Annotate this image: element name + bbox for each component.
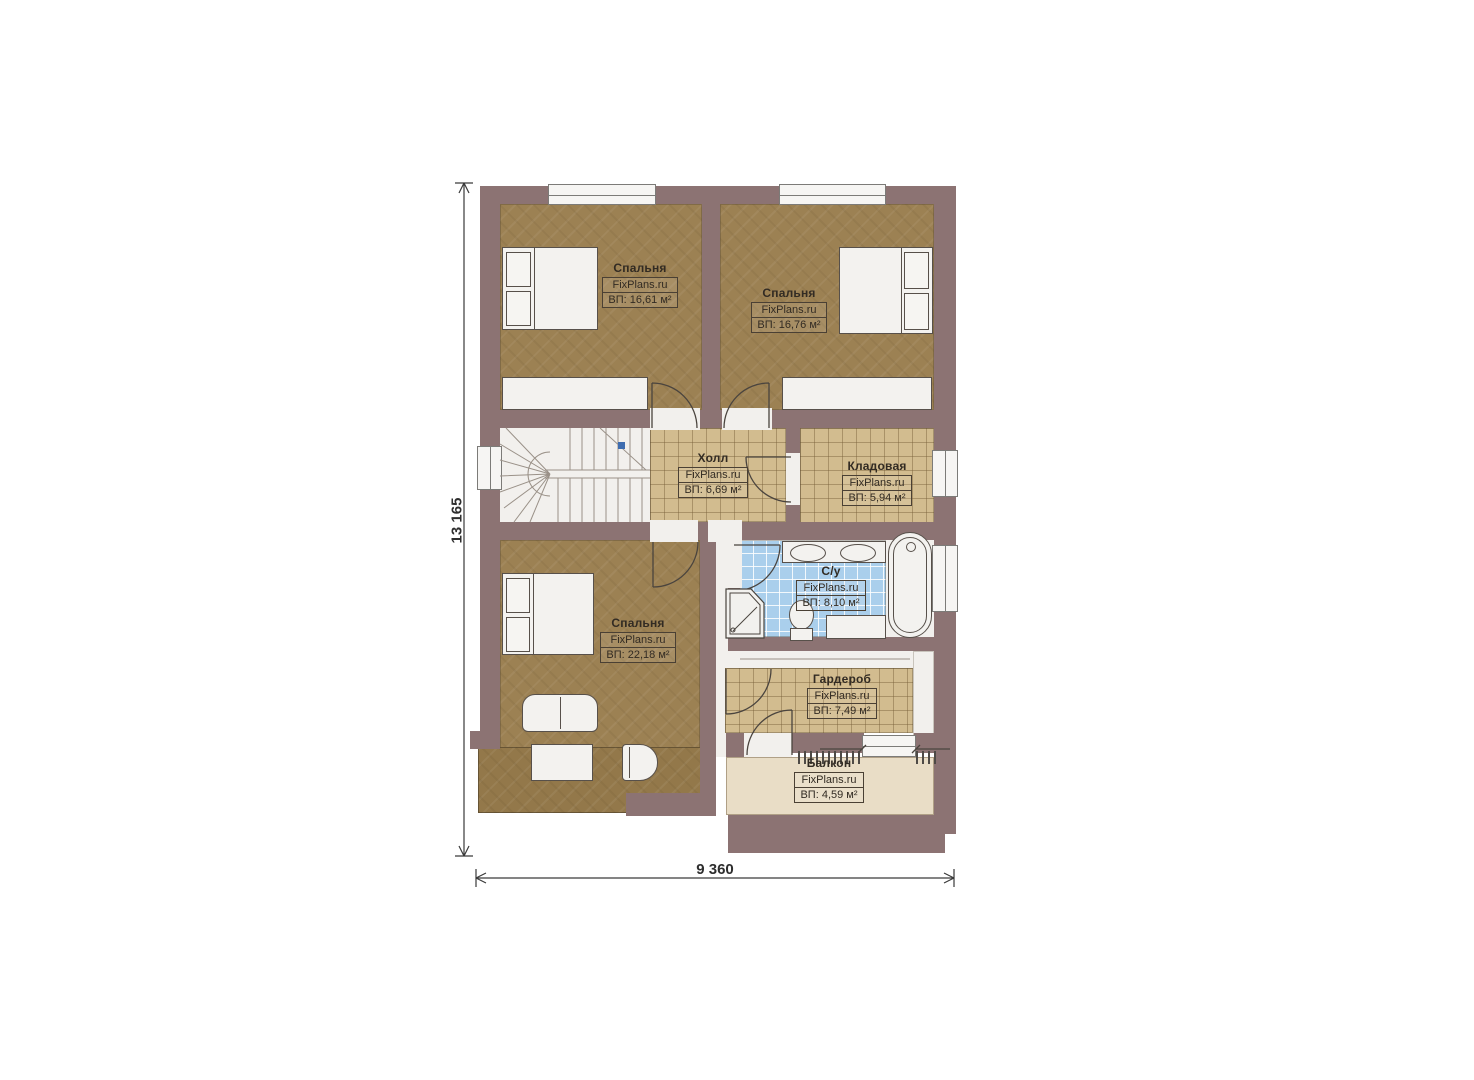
window-top-left (548, 184, 656, 205)
wardrobe-unit-bedroom-top-right (782, 377, 932, 410)
window-balcony (862, 735, 916, 757)
bed-top-right (839, 247, 933, 334)
balcony-railing-right (916, 751, 936, 764)
room-name: С/у (792, 565, 870, 578)
area-text: ВП: 22,18 м² (601, 648, 674, 662)
room-info-box: FixPlans.ru ВП: 16,76 м² (751, 302, 826, 333)
window-right-storage (932, 450, 958, 497)
wall-between-top-bedrooms (702, 204, 720, 428)
door-opening-storage (786, 453, 800, 505)
area-text: ВП: 16,76 м² (752, 318, 825, 332)
dimension-height-label: 13 165 (449, 490, 466, 552)
area-text: ВП: 7,49 м² (808, 704, 875, 718)
area-text: ВП: 6,69 м² (679, 483, 746, 497)
door-opening-bedroom-top-left (650, 408, 700, 430)
pillow (506, 291, 531, 326)
area-text: ВП: 8,10 м² (797, 596, 864, 610)
bed-headboard-line (534, 248, 535, 329)
wall-bedroom-bottom-right (700, 540, 716, 816)
sofa (522, 694, 598, 732)
room-info-box: FixPlans.ru ВП: 6,69 м² (678, 467, 747, 498)
wall-bedroom-bottom-edge (626, 793, 716, 816)
door-opening-bedroom-top-right (722, 408, 772, 430)
chair (622, 744, 658, 781)
wall-exterior-right (934, 186, 956, 834)
room-name: Кладовая (836, 460, 918, 473)
dimension-width-label: 9 360 (680, 861, 750, 878)
wall-left-stub (470, 731, 500, 749)
room-label-bedroom-top-right: Спальня FixPlans.ru ВП: 16,76 м² (746, 287, 832, 333)
room-info-box: FixPlans.ru ВП: 8,10 м² (796, 580, 865, 611)
brand-text: FixPlans.ru (795, 773, 862, 788)
sofa-cushion-line (560, 697, 561, 729)
window-top-right (779, 184, 886, 205)
toilet-tank (790, 628, 813, 641)
area-text: ВП: 5,94 м² (843, 491, 910, 505)
wall-balcony-right (914, 733, 934, 753)
brand-text: FixPlans.ru (752, 303, 825, 318)
brand-text: FixPlans.ru (603, 278, 676, 293)
room-info-box: FixPlans.ru ВП: 16,61 м² (602, 277, 677, 308)
bathtub (888, 532, 932, 638)
window-right-bathroom (932, 545, 958, 612)
room-name: Спальня (746, 287, 832, 300)
room-label-bathroom: С/у FixPlans.ru ВП: 8,10 м² (792, 565, 870, 611)
floor-plan-canvas: Спальня FixPlans.ru ВП: 16,61 м² Спальня… (0, 0, 1474, 1080)
pillow (506, 617, 530, 652)
closet-strip-top (716, 651, 913, 668)
door-opening-balcony (744, 733, 792, 757)
room-label-storage: Кладовая FixPlans.ru ВП: 5,94 м² (836, 460, 918, 506)
corridor-passage-opening (708, 520, 742, 542)
brand-text: FixPlans.ru (808, 689, 875, 704)
room-info-box: FixPlans.ru ВП: 7,49 м² (807, 688, 876, 719)
staircase-floor (500, 428, 650, 522)
chair-back-line (629, 747, 630, 778)
bed-headboard-line (901, 248, 902, 333)
room-label-wardrobe: Гардероб FixPlans.ru ВП: 7,49 м² (798, 673, 886, 719)
room-name: Холл (672, 452, 754, 465)
door-opening-bedroom-bottom (650, 520, 698, 542)
pillow (506, 578, 530, 613)
brand-text: FixPlans.ru (601, 633, 674, 648)
room-label-hall: Холл FixPlans.ru ВП: 6,69 м² (672, 452, 754, 498)
sink (840, 544, 876, 562)
room-name: Балкон (784, 757, 874, 770)
room-info-box: FixPlans.ru ВП: 5,94 м² (842, 475, 911, 506)
bathroom-cabinet (826, 615, 886, 639)
bed-bottom (502, 573, 594, 655)
bed-headboard-line (533, 574, 534, 654)
brand-text: FixPlans.ru (679, 468, 746, 483)
area-text: ВП: 16,61 м² (603, 293, 676, 307)
table (531, 744, 593, 781)
wall-bathroom-bottom (728, 637, 934, 651)
wall-balcony-stub-left (726, 733, 746, 757)
wall-below-balcony (728, 815, 945, 853)
room-info-box: FixPlans.ru ВП: 22,18 м² (600, 632, 675, 663)
brand-text: FixPlans.ru (797, 581, 864, 596)
bed-top-left (502, 247, 598, 330)
wall-under-top-bedrooms (500, 410, 934, 428)
brand-text: FixPlans.ru (843, 476, 910, 491)
area-text: ВП: 4,59 м² (795, 788, 862, 802)
room-label-balcony: Балкон FixPlans.ru ВП: 4,59 м² (784, 757, 874, 803)
room-name: Спальня (592, 262, 688, 275)
room-label-bedroom-bottom: Спальня FixPlans.ru ВП: 22,18 м² (596, 617, 680, 663)
room-name: Спальня (596, 617, 680, 630)
room-label-bedroom-top-left: Спальня FixPlans.ru ВП: 16,61 м² (592, 262, 688, 308)
closet-strip-right (913, 651, 934, 735)
wall-balcony-mid (790, 733, 864, 753)
pillow (506, 252, 531, 287)
pillow (904, 293, 929, 330)
bathtub-drain (906, 542, 916, 552)
pillow (904, 252, 929, 289)
sink (790, 544, 826, 562)
wardrobe-unit-bedroom-top-left (502, 377, 648, 410)
room-info-box: FixPlans.ru ВП: 4,59 м² (794, 772, 863, 803)
door-opening-bathroom (726, 542, 742, 588)
room-name: Гардероб (798, 673, 886, 686)
window-left-stairs (477, 446, 502, 490)
